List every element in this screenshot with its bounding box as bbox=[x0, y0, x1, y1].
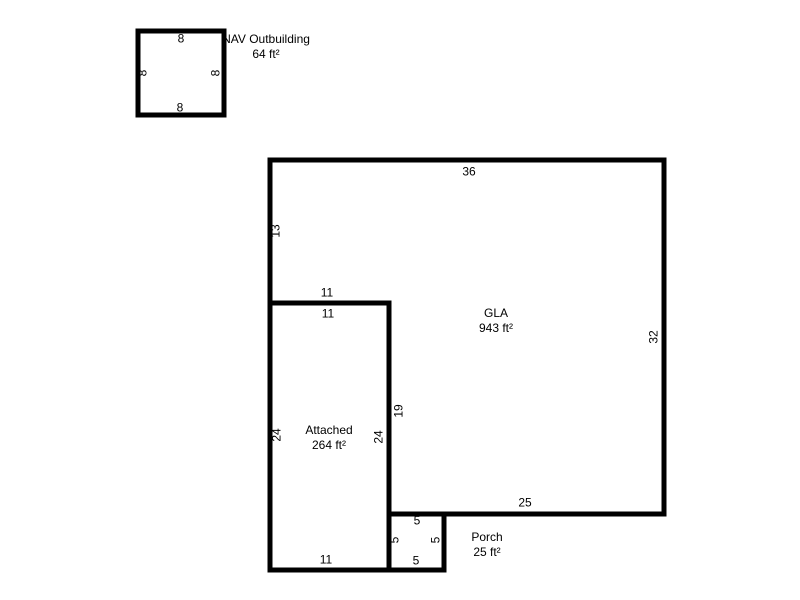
attached-label: Attached bbox=[305, 423, 352, 438]
gla-dim-left: 13 bbox=[270, 224, 283, 237]
outbuilding-dim-left: 8 bbox=[137, 70, 150, 77]
porch-dim-left: 5 bbox=[389, 537, 402, 544]
gla-dim-top: 36 bbox=[462, 166, 475, 179]
attached-dim-right: 24 bbox=[373, 430, 386, 443]
attached-dim-top: 11 bbox=[322, 308, 334, 321]
porch-area: 25 ft² bbox=[471, 545, 502, 560]
outbuilding-area: 64 ft² bbox=[222, 47, 310, 62]
porch-label: Porch bbox=[471, 530, 502, 545]
gla-dim-notch-side: 19 bbox=[393, 404, 406, 417]
gla-label: GLA bbox=[479, 306, 513, 321]
outbuilding-dim-right: 8 bbox=[210, 70, 223, 77]
porch-dim-top: 5 bbox=[414, 515, 421, 528]
porch-dim-bottom: 5 bbox=[413, 555, 420, 568]
gla-dim-bottom: 25 bbox=[518, 497, 531, 510]
porch-caption: Porch 25 ft² bbox=[471, 530, 502, 560]
outbuilding-caption: NAV Outbuilding 64 ft² bbox=[222, 32, 310, 62]
outbuilding-dim-top: 8 bbox=[178, 33, 185, 46]
gla-dim-right: 32 bbox=[648, 330, 661, 343]
gla-dim-notch-top: 11 bbox=[321, 287, 333, 300]
sketch-canvas bbox=[0, 0, 800, 600]
attached-dim-bottom: 11 bbox=[320, 554, 332, 567]
porch-dim-right: 5 bbox=[430, 537, 443, 544]
attached-caption: Attached 264 ft² bbox=[305, 423, 352, 453]
outbuilding-dim-bottom: 8 bbox=[177, 102, 184, 115]
outbuilding-label: NAV Outbuilding bbox=[222, 32, 310, 47]
floor-plan-sketch: 8 8 8 8 NAV Outbuilding 64 ft² 36 13 32 … bbox=[0, 0, 800, 600]
attached-dim-left: 24 bbox=[271, 428, 284, 441]
attached-area: 264 ft² bbox=[305, 438, 352, 453]
gla-area: 943 ft² bbox=[479, 321, 513, 336]
gla-caption: GLA 943 ft² bbox=[479, 306, 513, 336]
